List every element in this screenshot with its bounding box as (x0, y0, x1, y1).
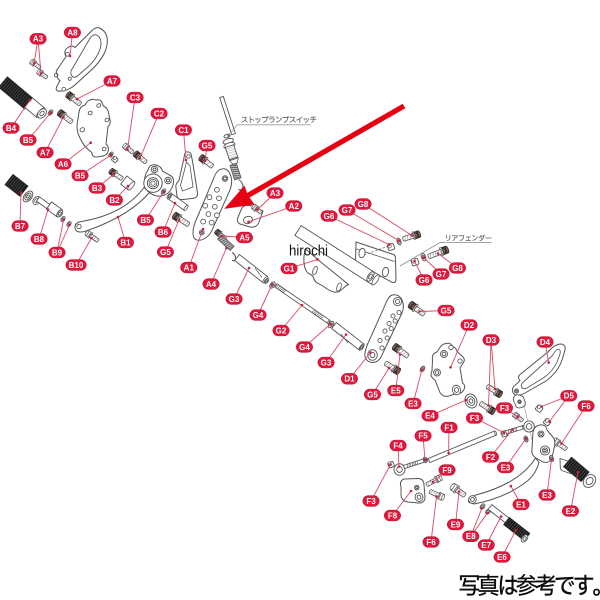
svg-text:E2: E2 (566, 507, 576, 516)
svg-text:G6: G6 (419, 276, 430, 285)
svg-text:G4: G4 (253, 311, 264, 320)
svg-text:E9: E9 (451, 520, 461, 529)
svg-text:E3: E3 (542, 491, 552, 500)
svg-text:A2: A2 (289, 202, 300, 211)
svg-text:A4: A4 (206, 280, 217, 289)
svg-text:G1: G1 (284, 264, 295, 273)
svg-text:B10: B10 (69, 261, 84, 270)
svg-text:C2: C2 (154, 109, 165, 118)
svg-text:C3: C3 (130, 93, 141, 102)
svg-text:F3: F3 (366, 497, 376, 506)
svg-text:G6: G6 (324, 212, 335, 221)
svg-text:B5: B5 (140, 216, 151, 225)
svg-text:E6: E6 (497, 553, 507, 562)
svg-text:E5: E5 (391, 386, 401, 395)
svg-text:B5: B5 (23, 136, 34, 145)
svg-text:A3: A3 (270, 189, 281, 198)
svg-text:B5: B5 (75, 171, 86, 180)
svg-text:F5: F5 (418, 432, 428, 441)
svg-text:A3: A3 (33, 35, 44, 44)
svg-text:D4: D4 (540, 338, 551, 347)
svg-text:D5: D5 (564, 392, 575, 401)
svg-text:A8: A8 (67, 28, 78, 37)
svg-text:B9: B9 (52, 248, 63, 257)
svg-text:F1: F1 (444, 423, 454, 432)
svg-text:F6: F6 (581, 402, 591, 411)
svg-text:F9: F9 (442, 466, 452, 475)
svg-text:C1: C1 (178, 126, 189, 135)
svg-text:B3: B3 (92, 184, 103, 193)
svg-text:F3: F3 (470, 414, 480, 423)
svg-text:B8: B8 (34, 235, 45, 244)
svg-text:G8: G8 (358, 200, 369, 209)
svg-text:G4: G4 (299, 343, 310, 352)
svg-text:G7: G7 (342, 206, 353, 215)
svg-text:F4: F4 (393, 441, 403, 450)
svg-text:G5: G5 (202, 141, 213, 150)
svg-text:E3: E3 (408, 399, 418, 408)
svg-text:D2: D2 (464, 321, 475, 330)
svg-text:B1: B1 (120, 238, 131, 247)
svg-text:E3: E3 (501, 463, 511, 472)
svg-text:A7: A7 (107, 77, 118, 86)
svg-text:E1: E1 (516, 500, 526, 509)
svg-text:hirochi: hirochi (289, 244, 328, 260)
svg-text:D3: D3 (486, 336, 497, 345)
svg-text:G7: G7 (436, 270, 447, 279)
svg-text:G2: G2 (276, 326, 287, 335)
svg-text:A1: A1 (184, 263, 195, 272)
svg-text:B4: B4 (6, 124, 17, 133)
svg-text:G8: G8 (452, 264, 463, 273)
svg-text:G3: G3 (229, 295, 240, 304)
svg-text:G5: G5 (441, 306, 452, 315)
svg-text:F8: F8 (388, 511, 398, 520)
svg-text:B6: B6 (158, 228, 169, 237)
svg-text:D1: D1 (344, 375, 355, 384)
svg-text:A6: A6 (58, 160, 69, 169)
svg-text:F6: F6 (426, 538, 436, 547)
svg-text:G3: G3 (321, 358, 332, 367)
svg-text:F3: F3 (500, 404, 510, 413)
svg-text:E7: E7 (481, 541, 491, 550)
svg-text:G5: G5 (160, 248, 171, 257)
svg-text:B2: B2 (109, 196, 120, 205)
svg-text:E4: E4 (425, 412, 435, 421)
svg-text:G5: G5 (367, 390, 378, 399)
svg-text:A7: A7 (40, 148, 51, 157)
svg-text:F2: F2 (486, 453, 496, 462)
svg-text:A5: A5 (239, 233, 250, 242)
svg-text:E8: E8 (466, 532, 476, 541)
svg-text:B7: B7 (15, 222, 26, 231)
